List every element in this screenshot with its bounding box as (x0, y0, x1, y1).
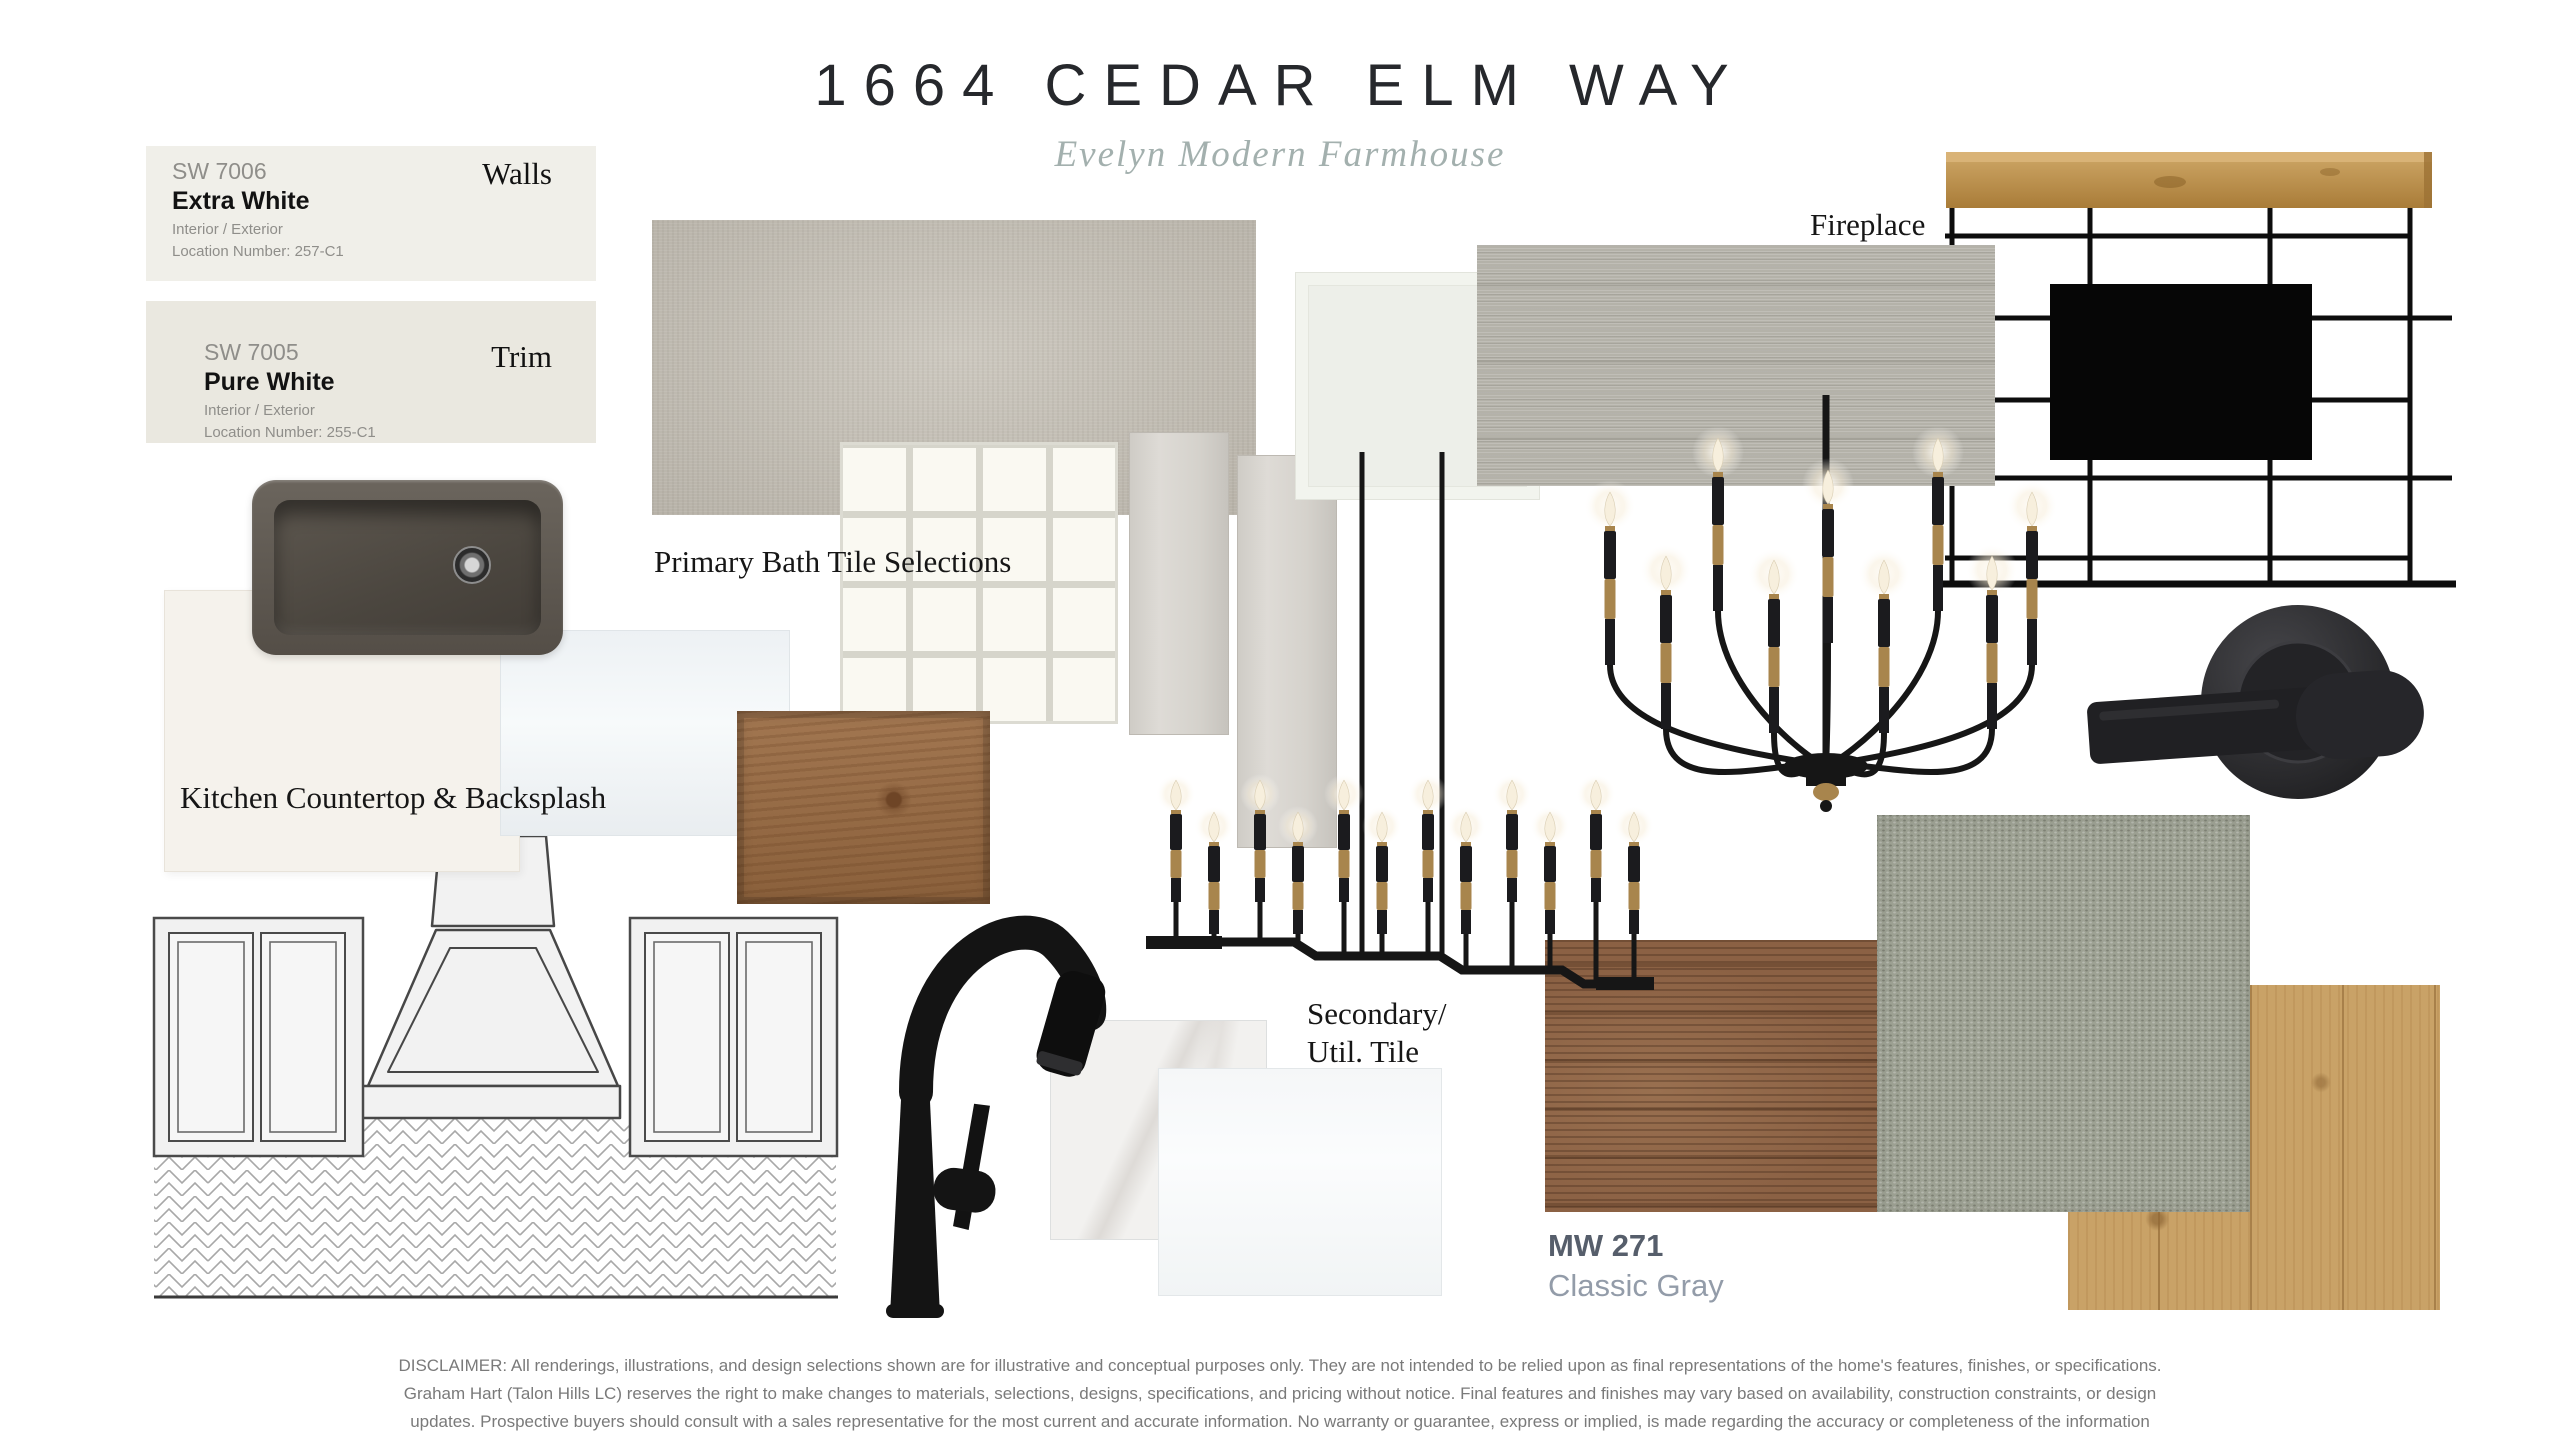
usage-label-trim: Trim (491, 339, 552, 375)
paint-location: Location Number: 255-C1 (204, 424, 596, 441)
kitchen-sink (252, 480, 563, 655)
stain-code-label: MW 271 (1548, 1228, 1663, 1264)
secondary-util-label-line2: Util. Tile (1307, 1033, 1446, 1071)
page-title: 1664 CEDAR ELM WAY (0, 52, 2560, 119)
sink-bowl-icon (274, 500, 541, 635)
usage-label-walls: Walls (482, 156, 552, 192)
square-grid-tile-swatch (840, 442, 1118, 724)
primary-bath-label: Primary Bath Tile Selections (654, 543, 1011, 581)
design-selections-board: 1664 CEDAR ELM WAY Evelyn Modern Farmhou… (0, 0, 2560, 1440)
secondary-util-label: Secondary/ Util. Tile (1307, 995, 1446, 1071)
carpet-swatch (1877, 815, 2250, 1212)
faucet-handle-icon (929, 1100, 1006, 1233)
kitchen-faucet (855, 888, 1145, 1323)
range-hood-icon (360, 836, 620, 1118)
door-lever (2070, 588, 2490, 823)
secondary-tile-plain (1158, 1068, 1442, 1296)
paint-location: Location Number: 257-C1 (172, 243, 596, 260)
secondary-util-label-line1: Secondary/ (1307, 995, 1446, 1033)
paint-swatch-trim: SW 7005 Pure White Interior / Exterior L… (146, 301, 596, 443)
sink-drain-icon (453, 546, 491, 584)
fireplace-label: Fireplace (1810, 206, 1925, 244)
stain-name-label: Classic Gray (1548, 1268, 1724, 1304)
paint-finish: Interior / Exterior (172, 221, 596, 238)
radial-chandelier (1570, 385, 2090, 835)
mantel-beam-icon (1946, 152, 2432, 208)
paint-finish: Interior / Exterior (204, 402, 596, 419)
disclaimer-text: DISCLAIMER: All renderings, illustration… (380, 1352, 2180, 1440)
kitchen-label: Kitchen Countertop & Backsplash (180, 779, 606, 817)
cabinet-stain-swatch (737, 711, 990, 904)
paint-swatch-walls: SW 7006 Extra White Interior / Exterior … (146, 146, 596, 281)
cabinet-left-icon (154, 918, 363, 1156)
cabinet-right-icon (630, 918, 837, 1156)
